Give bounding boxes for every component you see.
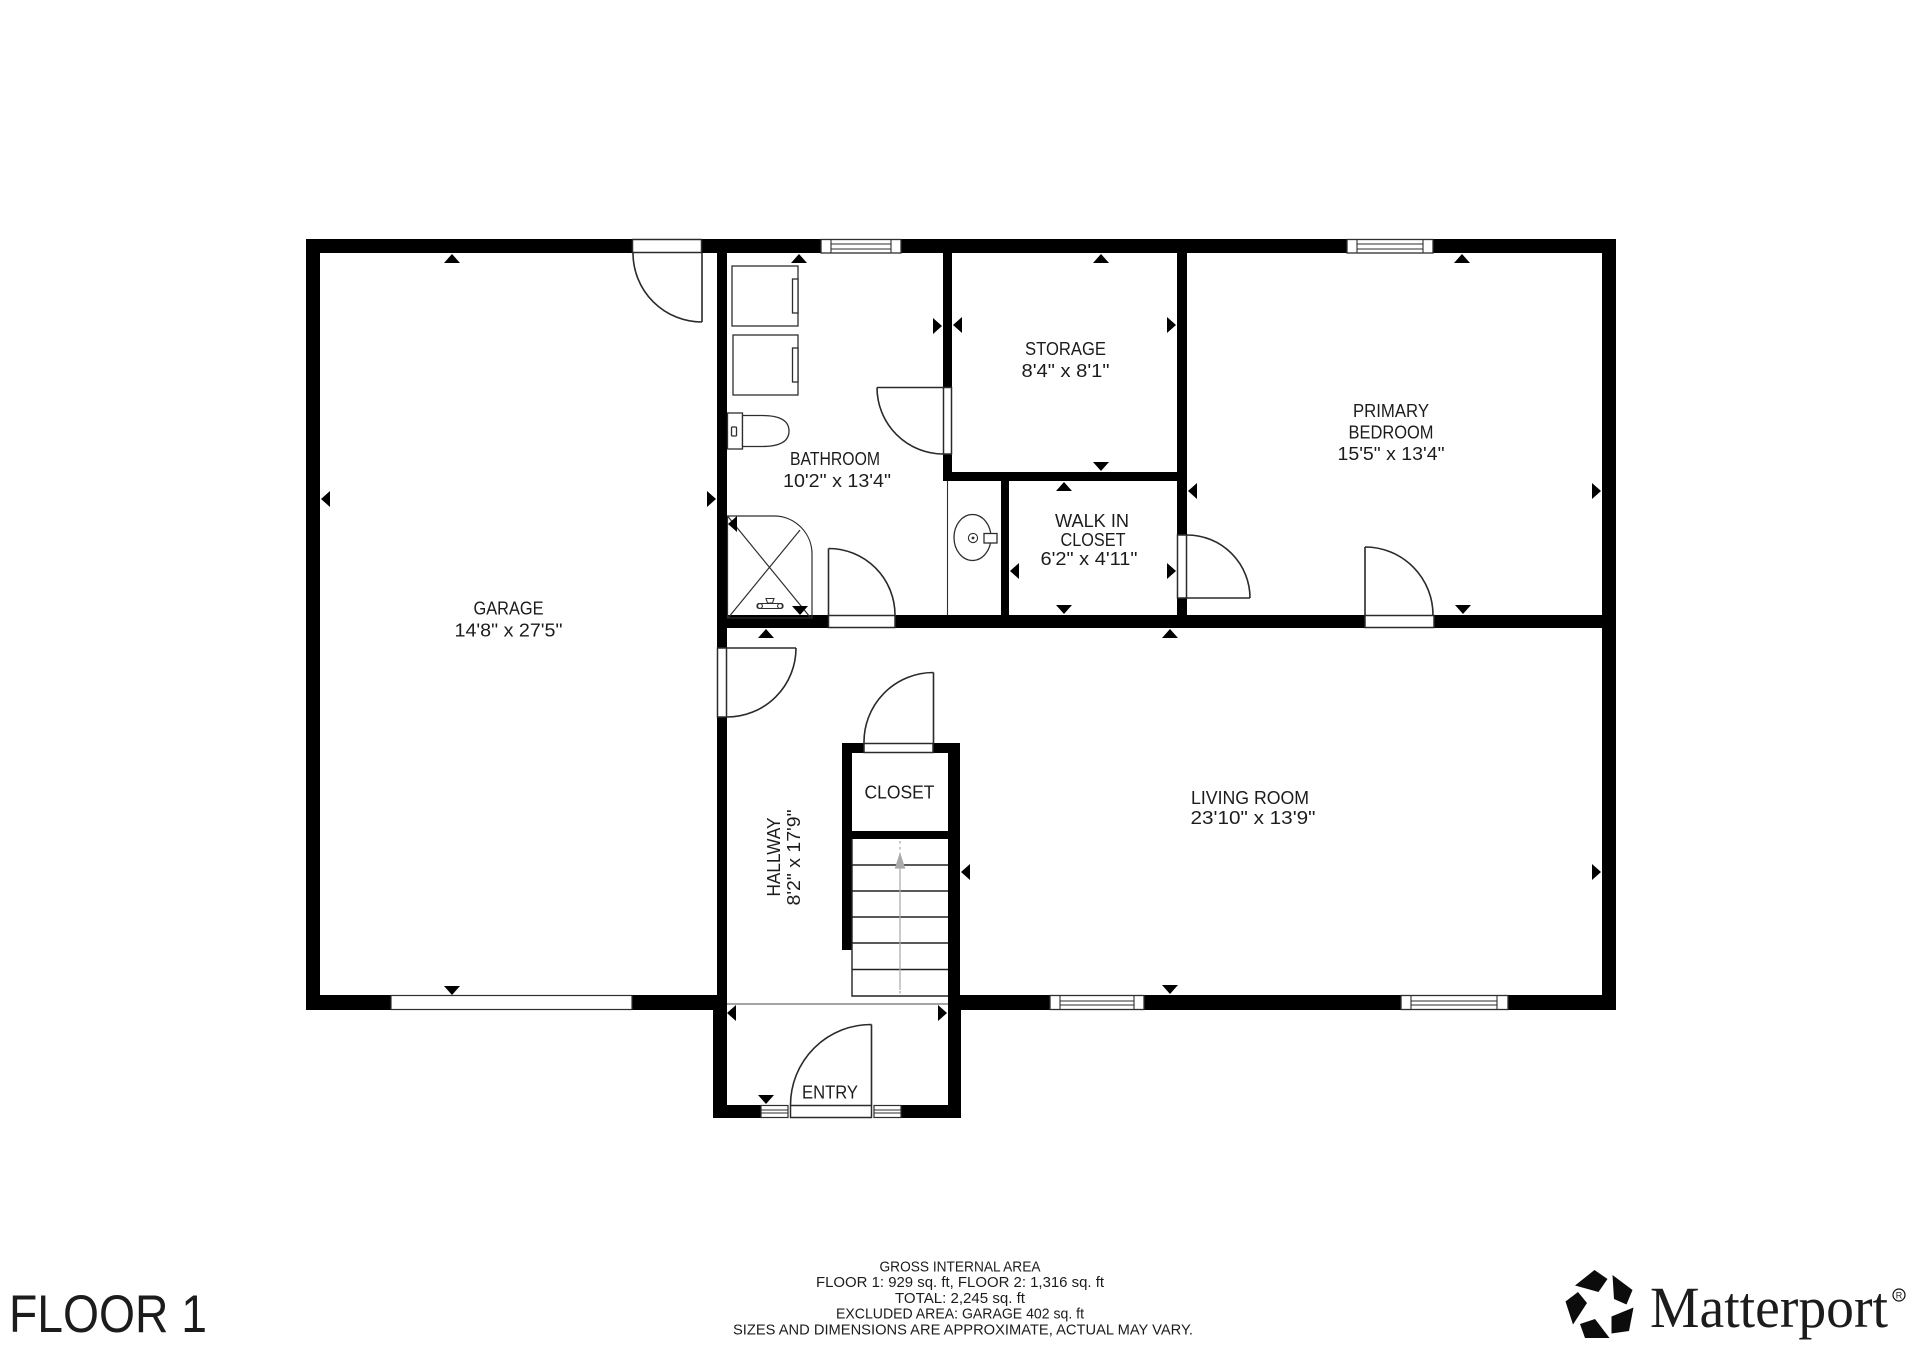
svg-text:TOTAL: 2,245 sq. ft: TOTAL: 2,245 sq. ft [895, 1290, 1026, 1307]
svg-text:15'5" x 13'4": 15'5" x 13'4" [1338, 444, 1445, 464]
svg-text:EXCLUDED AREA: GARAGE 402 sq.: EXCLUDED AREA: GARAGE 402 sq. ft [836, 1306, 1085, 1323]
svg-text:BATHROOM: BATHROOM [790, 449, 880, 469]
svg-text:CLOSET: CLOSET [865, 783, 935, 803]
svg-text:CLOSET: CLOSET [1061, 530, 1126, 550]
svg-text:8'2" x 17'9": 8'2" x 17'9" [784, 810, 804, 906]
svg-text:Matterport: Matterport [1650, 1275, 1888, 1340]
svg-text:14'8" x 27'5": 14'8" x 27'5" [455, 621, 563, 641]
svg-text:BEDROOM: BEDROOM [1349, 423, 1434, 443]
svg-text:WALK IN: WALK IN [1055, 511, 1129, 531]
svg-text:FLOOR 1: FLOOR 1 [9, 1285, 207, 1344]
svg-text:STORAGE: STORAGE [1025, 339, 1106, 359]
svg-text:ENTRY: ENTRY [802, 1083, 858, 1103]
svg-text:SIZES AND DIMENSIONS ARE APPRO: SIZES AND DIMENSIONS ARE APPROXIMATE, AC… [733, 1322, 1193, 1339]
svg-text:23'10" x 13'9": 23'10" x 13'9" [1191, 808, 1316, 828]
svg-text:10'2" x 13'4": 10'2" x 13'4" [783, 471, 891, 491]
svg-text:PRIMARY: PRIMARY [1353, 401, 1429, 421]
svg-text:R: R [1896, 1291, 1903, 1301]
svg-text:GROSS INTERNAL AREA: GROSS INTERNAL AREA [880, 1259, 1041, 1276]
svg-text:HALLWAY: HALLWAY [764, 818, 784, 897]
svg-text:LIVING ROOM: LIVING ROOM [1191, 788, 1309, 808]
svg-text:GARAGE: GARAGE [474, 599, 544, 619]
svg-text:6'2" x 4'11": 6'2" x 4'11" [1041, 549, 1138, 569]
svg-text:8'4" x 8'1": 8'4" x 8'1" [1022, 361, 1110, 381]
svg-text:FLOOR 1: 929 sq. ft, FLOOR 2:: FLOOR 1: 929 sq. ft, FLOOR 2: 1,316 sq. … [816, 1274, 1105, 1291]
